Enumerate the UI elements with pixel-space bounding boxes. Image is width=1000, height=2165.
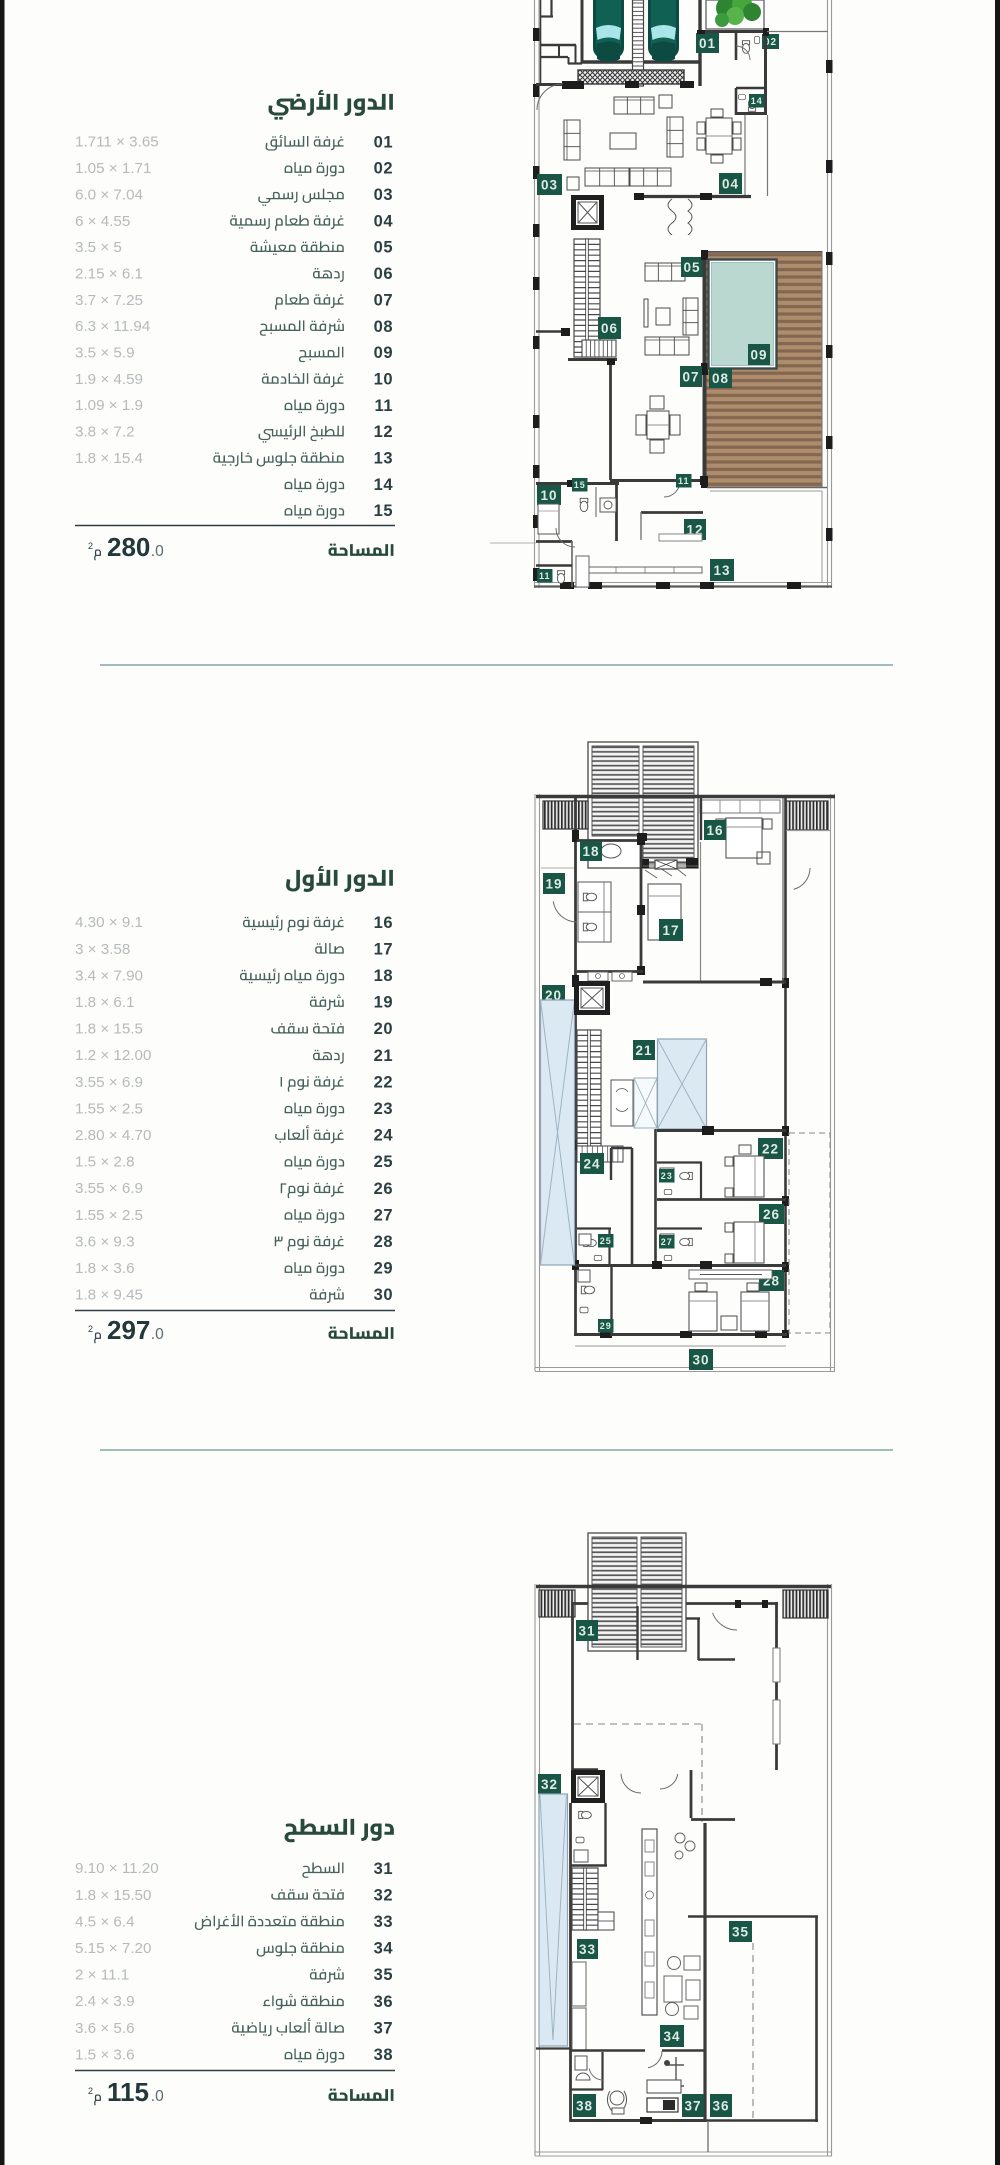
svg-text:4.5 × 6.4: 4.5 × 6.4 [75, 1913, 135, 1930]
svg-text:19: 19 [374, 994, 393, 1012]
svg-text:2: 2 [88, 2086, 93, 2096]
svg-text:08: 08 [374, 318, 393, 336]
svg-text:1.2 × 12.00: 1.2 × 12.00 [75, 1047, 151, 1064]
svg-text:13: 13 [374, 450, 393, 468]
svg-text:10: 10 [540, 488, 557, 503]
svg-text:36: 36 [374, 1993, 393, 2011]
svg-text:1.8 × 15.50: 1.8 × 15.50 [75, 1887, 151, 1904]
svg-text:08: 08 [712, 371, 729, 386]
svg-text:2.15 × 6.1: 2.15 × 6.1 [75, 265, 143, 282]
svg-text:28: 28 [374, 1233, 393, 1251]
svg-text:2: 2 [88, 1324, 93, 1334]
svg-text:14: 14 [374, 476, 394, 494]
svg-text:1.8 × 9.45: 1.8 × 9.45 [75, 1287, 143, 1304]
svg-text:1.9 × 4.59: 1.9 × 4.59 [75, 371, 143, 388]
svg-text:38: 38 [576, 2098, 593, 2113]
svg-text:1.711 × 3.65: 1.711 × 3.65 [75, 134, 159, 151]
svg-text:3.8 × 7.2: 3.8 × 7.2 [75, 424, 135, 441]
svg-text:05: 05 [374, 239, 393, 257]
svg-text:19: 19 [545, 876, 562, 891]
svg-text:34: 34 [663, 2029, 680, 2044]
svg-text:29: 29 [374, 1260, 393, 1278]
svg-text:.0: .0 [151, 1326, 164, 1343]
svg-text:2: 2 [88, 541, 93, 551]
svg-text:1.55 × 2.5: 1.55 × 2.5 [75, 1207, 143, 1224]
svg-text:3.55 × 6.9: 3.55 × 6.9 [75, 1180, 143, 1197]
svg-text:07: 07 [374, 291, 393, 309]
svg-text:25: 25 [600, 1236, 612, 1246]
svg-text:32: 32 [374, 1886, 393, 1904]
svg-text:23: 23 [374, 1100, 393, 1118]
svg-text:16: 16 [706, 823, 723, 838]
svg-text:297: 297 [107, 1315, 150, 1345]
svg-text:22: 22 [374, 1073, 393, 1091]
svg-text:.0: .0 [151, 543, 164, 560]
svg-text:20: 20 [374, 1020, 393, 1038]
svg-text:11: 11 [375, 397, 393, 415]
svg-text:33: 33 [579, 1942, 596, 1957]
svg-text:12: 12 [374, 423, 393, 441]
svg-text:5.15 × 7.20: 5.15 × 7.20 [75, 1940, 151, 1957]
svg-text:11: 11 [539, 571, 551, 581]
svg-text:03: 03 [541, 177, 558, 192]
svg-text:09: 09 [374, 344, 393, 362]
svg-text:3.4 × 7.90: 3.4 × 7.90 [75, 967, 143, 984]
svg-text:17: 17 [662, 923, 679, 938]
svg-text:29: 29 [600, 1321, 612, 1331]
svg-text:10: 10 [374, 370, 393, 388]
svg-text:34: 34 [374, 1940, 394, 1958]
svg-text:35: 35 [732, 1924, 749, 1939]
svg-text:1.8 × 15.5: 1.8 × 15.5 [75, 1021, 143, 1038]
svg-text:31: 31 [578, 1623, 595, 1638]
svg-text:2 × 11.1: 2 × 11.1 [75, 1967, 129, 1984]
svg-text:1.5 × 2.8: 1.5 × 2.8 [75, 1154, 135, 1171]
svg-text:04: 04 [374, 212, 394, 230]
svg-text:3.5 × 5: 3.5 × 5 [75, 239, 122, 256]
svg-text:09: 09 [750, 347, 767, 362]
svg-text:17: 17 [374, 940, 393, 958]
svg-text:23: 23 [661, 1171, 673, 1181]
svg-text:115: 115 [107, 2077, 149, 2107]
svg-text:14: 14 [751, 96, 763, 106]
svg-text:3.6 × 5.6: 3.6 × 5.6 [75, 2020, 135, 2037]
svg-text:9.10 × 11.20: 9.10 × 11.20 [75, 1860, 159, 1877]
svg-text:4.30 × 9.1: 4.30 × 9.1 [75, 914, 143, 931]
svg-text:6 × 4.55: 6 × 4.55 [75, 213, 130, 230]
svg-text:3 × 3.58: 3 × 3.58 [75, 941, 130, 958]
svg-text:03: 03 [374, 186, 393, 204]
svg-text:1.8 × 3.6: 1.8 × 3.6 [75, 1260, 135, 1277]
svg-text:26: 26 [763, 1207, 780, 1222]
svg-text:3.55 × 6.9: 3.55 × 6.9 [75, 1074, 143, 1091]
svg-text:.0: .0 [151, 2088, 164, 2105]
svg-text:30: 30 [374, 1286, 393, 1304]
svg-text:06: 06 [374, 265, 393, 283]
svg-text:16: 16 [374, 914, 393, 932]
svg-text:18: 18 [374, 967, 393, 985]
svg-text:32: 32 [541, 1777, 558, 1792]
svg-text:18: 18 [582, 844, 599, 859]
svg-text:15: 15 [574, 480, 586, 490]
svg-text:6.3 × 11.94: 6.3 × 11.94 [75, 318, 150, 335]
svg-text:3.6 × 9.3: 3.6 × 9.3 [75, 1233, 135, 1250]
svg-text:37: 37 [374, 2019, 393, 2037]
svg-text:1.8 × 6.1: 1.8 × 6.1 [75, 994, 135, 1011]
svg-text:35: 35 [374, 1966, 393, 1984]
svg-text:2.80 × 4.70: 2.80 × 4.70 [75, 1127, 151, 1144]
svg-text:37: 37 [684, 2098, 701, 2113]
svg-text:38: 38 [374, 2046, 393, 2064]
svg-text:22: 22 [762, 1141, 779, 1156]
svg-text:24: 24 [583, 1156, 600, 1171]
svg-text:11: 11 [678, 476, 690, 486]
svg-text:280: 280 [107, 532, 150, 562]
svg-text:25: 25 [374, 1153, 393, 1171]
svg-text:04: 04 [722, 176, 739, 191]
svg-text:05: 05 [683, 260, 700, 275]
svg-text:30: 30 [692, 1352, 709, 1367]
svg-text:01: 01 [374, 133, 393, 151]
svg-text:3.7 × 7.25: 3.7 × 7.25 [75, 292, 143, 309]
svg-text:26: 26 [374, 1180, 393, 1198]
svg-text:1.05 × 1.71: 1.05 × 1.71 [75, 160, 151, 177]
svg-text:6.0 × 7.04: 6.0 × 7.04 [75, 186, 143, 203]
svg-text:02: 02 [374, 160, 393, 178]
svg-text:13: 13 [713, 563, 730, 578]
svg-text:36: 36 [712, 2098, 729, 2113]
svg-text:1.09 × 1.9: 1.09 × 1.9 [75, 397, 143, 414]
svg-text:21: 21 [635, 1043, 652, 1058]
svg-text:1.8 × 15.4: 1.8 × 15.4 [75, 450, 143, 467]
svg-text:01: 01 [699, 36, 716, 51]
svg-text:3.5 × 5.9: 3.5 × 5.9 [75, 345, 135, 362]
svg-text:33: 33 [374, 1913, 393, 1931]
svg-text:27: 27 [374, 1206, 393, 1224]
svg-text:31: 31 [374, 1860, 393, 1878]
svg-text:07: 07 [682, 369, 699, 384]
svg-text:1.55 × 2.5: 1.55 × 2.5 [75, 1100, 143, 1117]
svg-text:24: 24 [374, 1127, 394, 1145]
svg-text:27: 27 [661, 1237, 673, 1247]
svg-text:2.4 × 3.9: 2.4 × 3.9 [75, 1993, 135, 2010]
svg-text:15: 15 [374, 502, 393, 520]
svg-text:06: 06 [601, 321, 618, 336]
svg-text:21: 21 [374, 1047, 393, 1065]
svg-text:1.5 × 3.6: 1.5 × 3.6 [75, 2046, 135, 2063]
